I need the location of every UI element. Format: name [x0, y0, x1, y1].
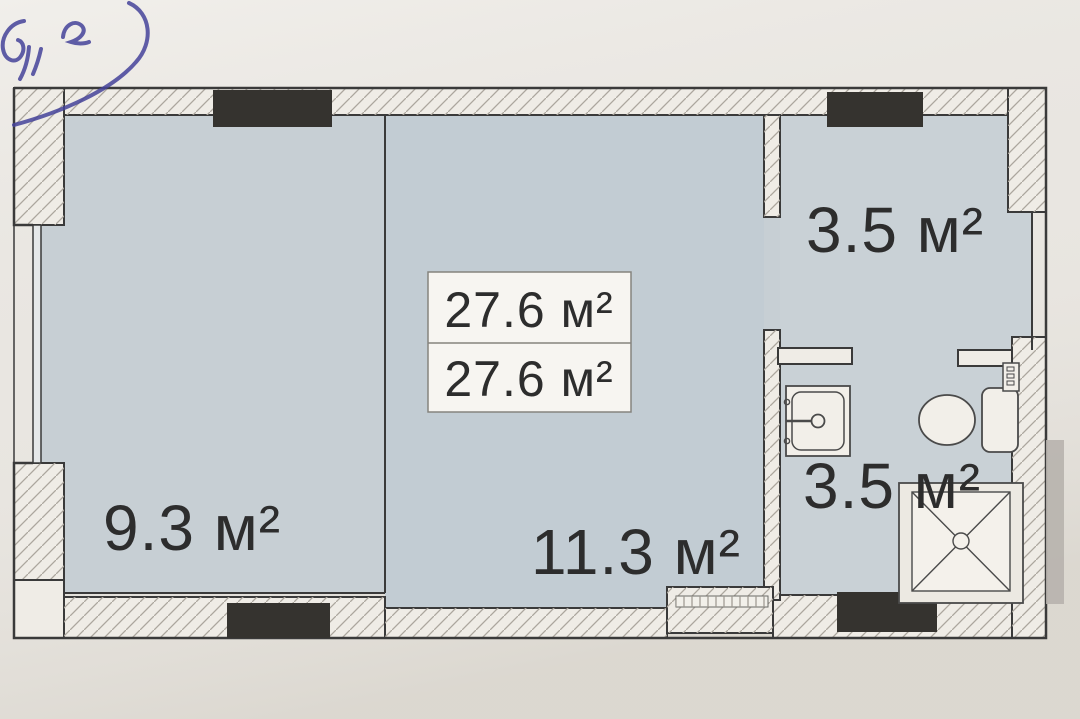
- sink-icon: [784, 386, 850, 456]
- floor-doorway-main-to-hall: [764, 217, 780, 330]
- area-summary-box: 27.6 м² 27.6 м²: [428, 272, 631, 412]
- total-area-label: 27.6 м²: [444, 282, 613, 338]
- window-block-top-right: [827, 92, 923, 127]
- living-area-label: 27.6 м²: [444, 351, 613, 407]
- window-block-top-left: [213, 90, 332, 127]
- window-block-bottom-left: [227, 603, 330, 638]
- wall-corner-bottom-left: [14, 580, 64, 638]
- balcony-area-label: 9.3 м²: [103, 492, 281, 564]
- right-wall-shadow: [1046, 440, 1064, 604]
- balcony-window: [33, 225, 41, 463]
- wall-stub-bathroom-left: [778, 348, 852, 364]
- entry-hall-area-label: 3.5 м²: [806, 194, 984, 266]
- floor-plan-drawing: 27.6 м² 27.6 м² 9.3 м² 11.3 м² 3.5 м² 3.…: [0, 0, 1080, 719]
- living-zone-area-label: 11.3 м²: [531, 516, 741, 588]
- scanned-floor-plan: 27.6 м² 27.6 м² 9.3 м² 11.3 м² 3.5 м² 3.…: [0, 0, 1080, 719]
- bathroom-area-label: 3.5 м²: [803, 450, 981, 522]
- flush-niche-icon: [1003, 363, 1019, 391]
- vent-grille: [676, 596, 768, 607]
